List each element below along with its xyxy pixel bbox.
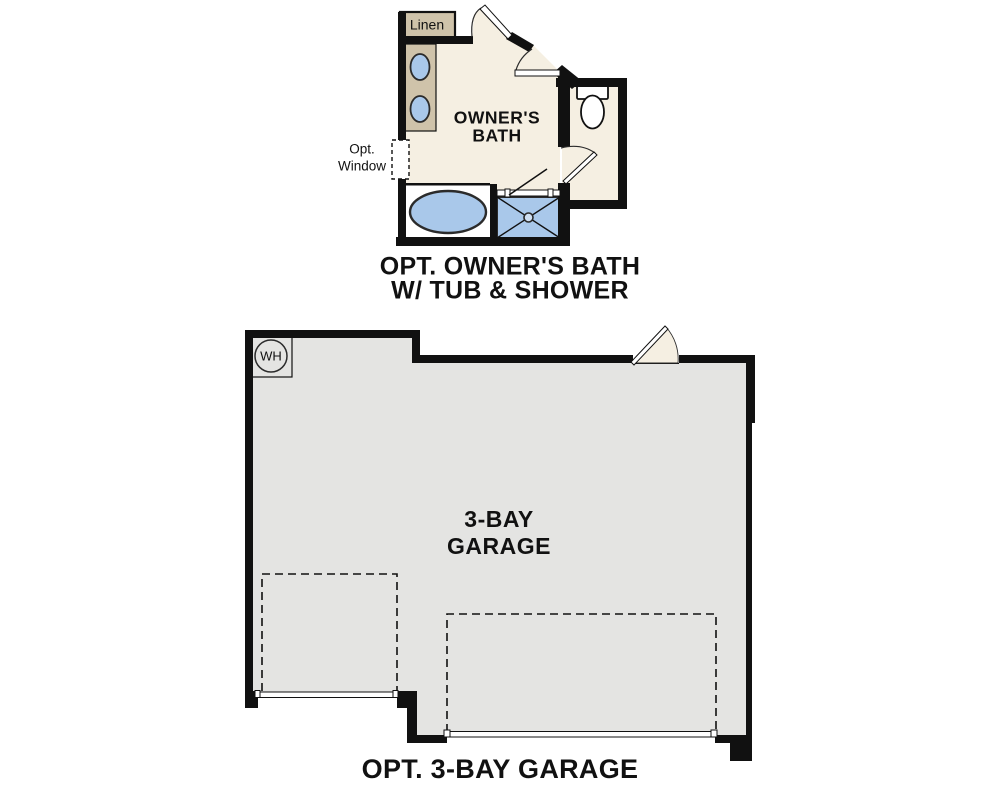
bath-title-line2: W/ TUB & SHOWER: [391, 277, 629, 305]
bath-room-label-line1: OWNER'S: [454, 108, 540, 128]
garage-door-double: [444, 730, 717, 737]
garage-entry-door-swing-icon: [631, 326, 679, 365]
bath-room-label-line2: BATH: [472, 126, 521, 146]
sink-icon: [411, 54, 430, 80]
garage-door-single: [255, 691, 398, 698]
garage-plan: WH: [245, 326, 755, 784]
tub-room-divider: [404, 183, 490, 186]
garage-room-label-line2: GARAGE: [447, 533, 551, 559]
linen-label: Linen: [410, 17, 444, 33]
shower-icon: [497, 197, 560, 238]
water-heater-label: WH: [260, 348, 282, 363]
owners-bath-plan: Linen Opt. Window OWNER'S BATH OPT. OWNE…: [338, 5, 640, 305]
tub-icon: [410, 191, 486, 233]
opt-window-symbol: [392, 140, 409, 179]
opt-window-label-line2: Window: [338, 159, 386, 174]
opt-window-label-line1: Opt.: [349, 142, 375, 157]
floor-plan-page: Linen Opt. Window OWNER'S BATH OPT. OWNE…: [0, 0, 1000, 800]
garage-title: OPT. 3-BAY GARAGE: [362, 754, 639, 784]
garage-room-label-line1: 3-BAY: [464, 506, 533, 532]
sink-icon: [411, 96, 430, 122]
